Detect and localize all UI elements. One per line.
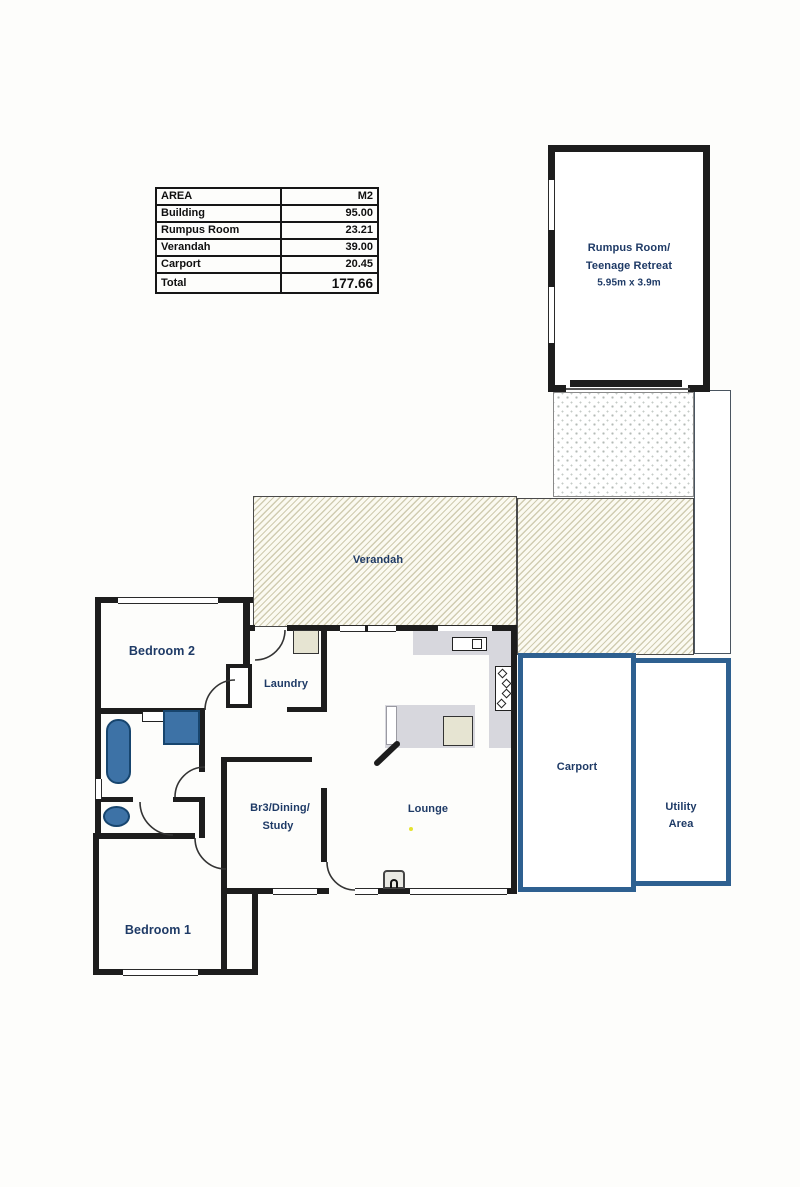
rumpus-door-threshold xyxy=(566,388,690,390)
lounge-window xyxy=(410,888,507,895)
floor-plan-page: AREA M2 Building 95.00 Rumpus Room 23.21… xyxy=(0,0,800,1187)
wall-cavity xyxy=(226,664,252,708)
lounge-window xyxy=(273,888,317,895)
washer-icon xyxy=(293,630,319,654)
row-value: 177.66 xyxy=(281,273,378,293)
row-value: 20.45 xyxy=(281,256,378,273)
bedroom1-nib-wall xyxy=(252,893,258,975)
bathtub-icon xyxy=(106,719,131,784)
br3-right-wall xyxy=(321,788,327,862)
row-label: Carport xyxy=(156,256,281,273)
rumpus-window xyxy=(548,180,555,230)
row-value: 23.21 xyxy=(281,222,378,239)
scan-mark xyxy=(409,827,413,831)
rumpus-room-label2: Teenage Retreat xyxy=(586,260,672,272)
br3-label: Br3/Dining/ xyxy=(250,802,310,814)
oven-icon xyxy=(443,716,473,746)
table-row-building: Building 95.00 xyxy=(156,205,378,222)
table-row-verandah: Verandah 39.00 xyxy=(156,239,378,256)
vanity-icon xyxy=(142,711,164,722)
rumpus-room-dimensions: 5.95m x 3.9m xyxy=(597,278,660,289)
utility-area xyxy=(631,658,731,886)
house-bottom-wall xyxy=(317,888,329,894)
laundry-right-wall xyxy=(321,630,327,712)
rumpus-sliding-door xyxy=(570,380,682,387)
carport-label: Carport xyxy=(557,761,597,773)
row-label: Rumpus Room xyxy=(156,222,281,239)
row-value: 39.00 xyxy=(281,239,378,256)
bedroom1-bottom-wall xyxy=(198,969,258,975)
toilet-door-arc xyxy=(140,802,173,835)
area-table-header-row: AREA M2 xyxy=(156,188,378,205)
dishwasher-icon xyxy=(386,706,397,745)
row-label: Building xyxy=(156,205,281,222)
bedroom1-top-wall xyxy=(93,833,195,839)
east-verandah-area xyxy=(517,498,694,655)
br3-left-wall xyxy=(221,757,227,975)
table-row-total: Total 177.66 xyxy=(156,273,378,293)
sink-bowl-icon xyxy=(472,639,482,649)
laundry-label: Laundry xyxy=(264,678,308,690)
house-left-wall xyxy=(95,598,101,779)
house-bottom-wall xyxy=(221,888,273,894)
bedroom2-label: Bedroom 2 xyxy=(129,644,195,658)
row-label: Verandah xyxy=(156,239,281,256)
wall-segment xyxy=(688,385,710,392)
side-strip xyxy=(694,390,731,654)
lounge-window xyxy=(355,888,378,895)
bedroom2-right-wall xyxy=(243,598,250,664)
laundry-door-arc xyxy=(255,630,285,660)
rumpus-room-label: Rumpus Room/ xyxy=(588,242,670,254)
area-table-header-m2: M2 xyxy=(281,188,378,205)
rumpus-window xyxy=(548,287,555,343)
br3-label2: Study xyxy=(262,820,293,832)
table-row-carport: Carport 20.45 xyxy=(156,256,378,273)
shower-icon xyxy=(163,710,200,745)
row-value: 95.00 xyxy=(281,205,378,222)
paved-path-area xyxy=(553,392,694,497)
lounge-label: Lounge xyxy=(408,803,448,815)
area-table-header-area: AREA xyxy=(156,188,281,205)
table-row-rumpus: Rumpus Room 23.21 xyxy=(156,222,378,239)
fireplace-arch-icon xyxy=(390,879,398,888)
window-mullion xyxy=(365,625,368,632)
bedroom1-label: Bedroom 1 xyxy=(125,923,191,937)
verandah-label: Verandah xyxy=(353,554,403,566)
kitchen-window xyxy=(340,625,396,632)
br3-top-wall xyxy=(221,757,312,762)
utility-area-label: Utility xyxy=(665,801,696,813)
bathroom-window xyxy=(95,779,102,799)
toilet-right-wall xyxy=(199,797,205,838)
bedroom2-window xyxy=(118,597,218,604)
bedroom1-left-wall xyxy=(93,833,99,975)
house-left-wall xyxy=(95,799,101,835)
bedroom1-window xyxy=(123,969,198,976)
area-table: AREA M2 Building 95.00 Rumpus Room 23.21… xyxy=(155,187,379,294)
row-label: Total xyxy=(156,273,281,293)
utility-area-label2: Area xyxy=(669,818,694,830)
wall-segment xyxy=(548,385,566,392)
toilet-icon xyxy=(103,806,130,827)
br3-door-arc xyxy=(327,862,355,890)
